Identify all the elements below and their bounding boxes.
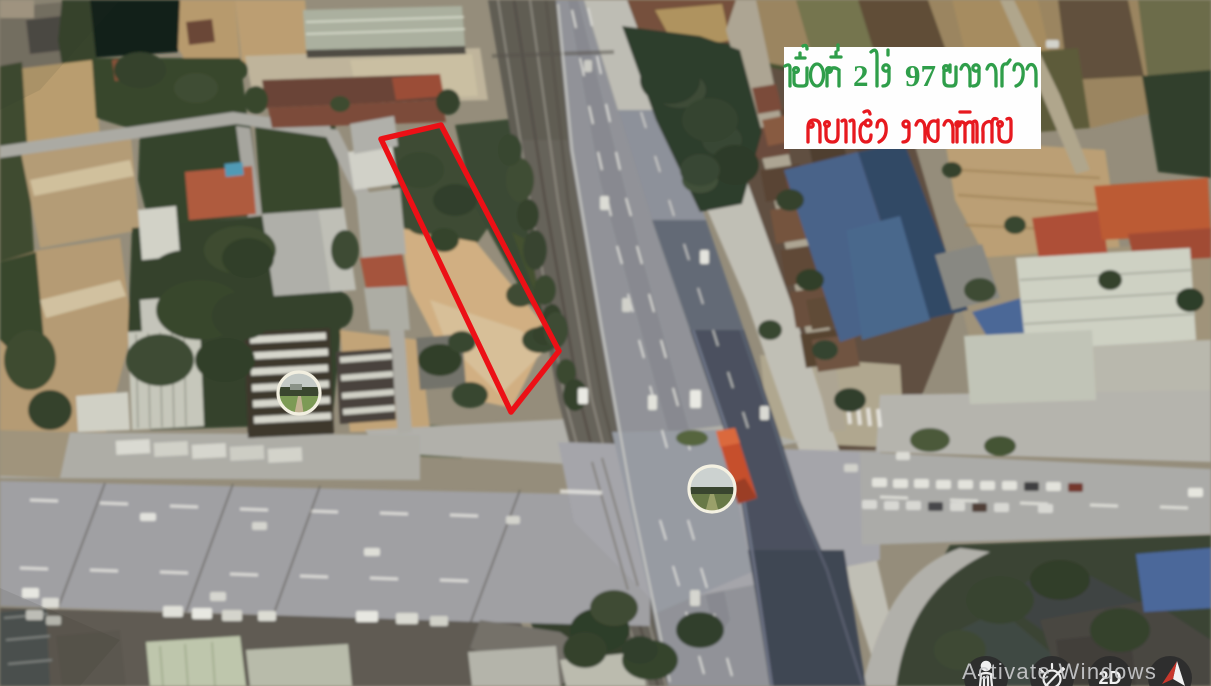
svg-text:Activate Windows: Activate Windows: [962, 659, 1157, 684]
svg-text:2: 2: [853, 58, 869, 93]
svg-text:97: 97: [905, 58, 936, 93]
